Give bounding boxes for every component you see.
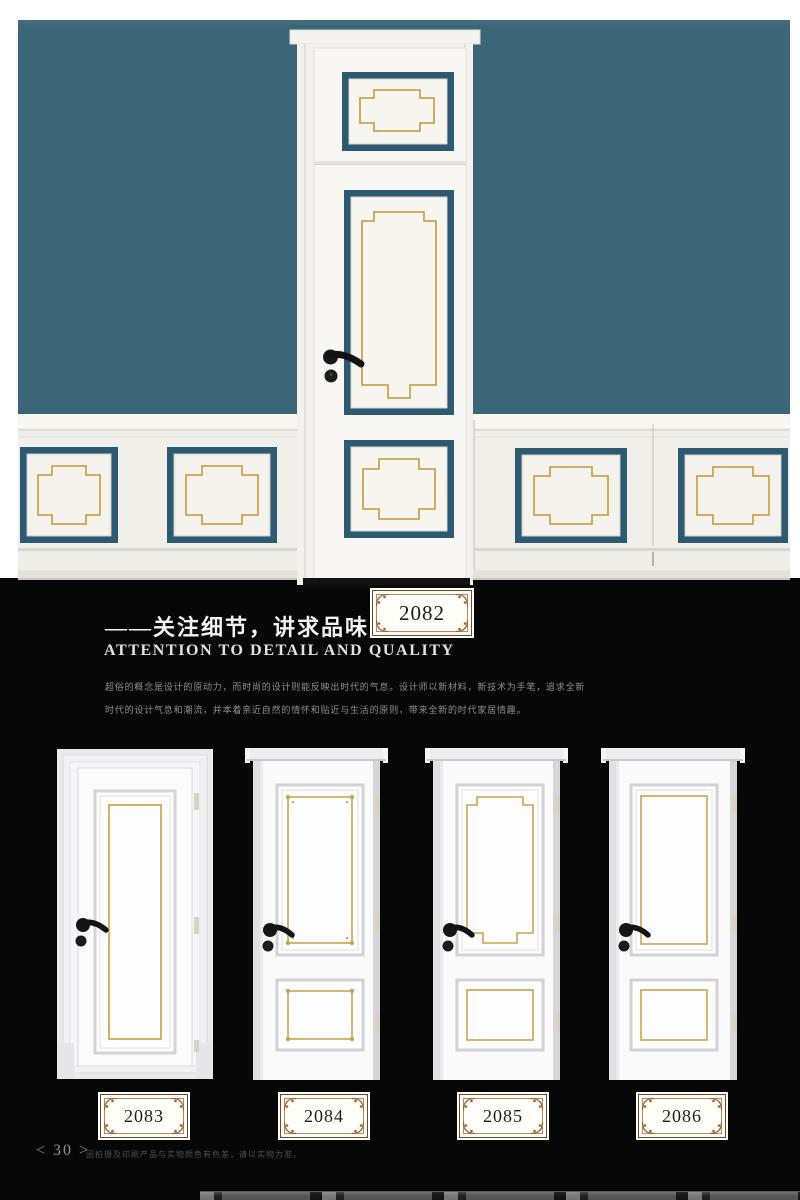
hero-door: [290, 30, 480, 589]
door-bottom-panel: [631, 980, 717, 1050]
wainscot-seam: [653, 424, 654, 546]
product-code: 2083: [124, 1106, 164, 1127]
product-code: 2085: [483, 1106, 523, 1127]
product-door-2085[interactable]: [425, 748, 568, 1082]
door-bottom-panel: [277, 980, 363, 1050]
product-code-badge-2083: 2083: [100, 1094, 188, 1138]
ornament-corner-icon: [530, 1097, 544, 1111]
door-main-panel: [344, 190, 454, 415]
ornament-corner-icon: [351, 1121, 365, 1135]
transom-panel: [342, 72, 454, 151]
ornament-corner-icon: [709, 1121, 723, 1135]
body-line: 时代的设计气息和潮流，并本着亲近自然的情怀和贴近与生活的原则，带来全新的时代家居…: [105, 699, 565, 722]
product-code-badge-2085: 2085: [459, 1094, 547, 1138]
door-bottom-panel: [457, 980, 543, 1050]
product-door-2086[interactable]: [601, 748, 745, 1082]
door-panel: [95, 791, 175, 1053]
product-code: 2084: [304, 1106, 344, 1127]
ornament-corner-icon: [283, 1121, 297, 1135]
wainscot-panel: [678, 448, 788, 543]
ornament-corner-icon: [351, 1097, 365, 1111]
next-page-preview-strip: [200, 1191, 800, 1200]
product-code-badge-2084: 2084: [280, 1094, 368, 1138]
ornament-corner-icon: [455, 593, 469, 607]
hero-room-scene: [0, 0, 800, 592]
ornament-corner-icon: [462, 1097, 476, 1111]
ornament-corner-icon: [462, 1121, 476, 1135]
ornament-corner-icon: [375, 619, 389, 633]
catalog-page: ——关注细节，讲求品味 ATTENTION TO DETAIL AND QUAL…: [0, 0, 800, 1200]
ornament-corner-icon: [171, 1121, 185, 1135]
product-code-badge-2086: 2086: [638, 1094, 726, 1138]
door-top-panel: [277, 785, 363, 955]
ornament-corner-icon: [171, 1097, 185, 1111]
door-top-panel: [457, 785, 543, 955]
door-head-casing: [290, 30, 480, 44]
ornament-corner-icon: [709, 1097, 723, 1111]
product-door-2083[interactable]: [57, 747, 213, 1085]
ornament-corner-icon: [103, 1121, 117, 1135]
ornament-corner-icon: [103, 1097, 117, 1111]
ornament-corner-icon: [641, 1097, 655, 1111]
product-code: 2086: [662, 1106, 702, 1127]
wainscot-panel: [167, 447, 277, 543]
ornament-corner-icon: [283, 1097, 297, 1111]
door-bottom-panel: [344, 440, 454, 538]
wainscot-panel: [515, 448, 627, 543]
product-code: 2082: [399, 601, 445, 626]
ornament-corner-icon: [455, 619, 469, 633]
section-body-copy: 超俗的概念是设计的原动力，而时尚的设计则能反映出时代的气息。设计师以新材料，新技…: [105, 676, 565, 722]
page-number: < 30 >: [36, 1142, 90, 1160]
wainscot-panel: [20, 447, 118, 543]
section-title-en: ATTENTION TO DETAIL AND QUALITY: [104, 642, 584, 660]
product-code-badge-main: 2082: [372, 590, 472, 636]
product-door-2084[interactable]: [245, 748, 388, 1082]
ornament-corner-icon: [641, 1121, 655, 1135]
body-line: 超俗的概念是设计的原动力，而时尚的设计则能反映出时代的气息。设计师以新材料，新技…: [105, 676, 565, 699]
footer-disclaimer: 因拍摄及印刷产品与实物颜色有色差，请以实物为准。: [86, 1149, 302, 1160]
ornament-corner-icon: [530, 1121, 544, 1135]
ornament-corner-icon: [375, 593, 389, 607]
